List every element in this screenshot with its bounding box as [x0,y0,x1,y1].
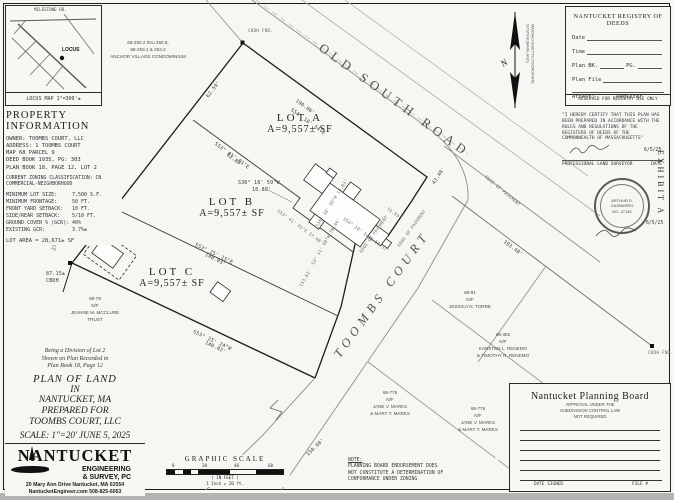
firm-address: 20 Mary Ann Drive Nantucket, MA 02554 [5,482,145,489]
firm-name: NANTUCKET [5,446,145,466]
dim-label: CBDH [46,279,59,285]
locus-dot [60,56,64,60]
lot-area-row: LOT AREA = 28,671± SF [6,238,122,245]
surveyor-seal: ARTHUR D. GASBARRO NO. 47145 [594,178,650,234]
scale-date-line: SCALE: 1"=20' JUNE 5, 2025 [5,430,145,440]
coordinate-system-note: MASSACHUSETTS COORDINATE SYSTEM (MAINLAN… [524,24,535,84]
locus-road-label: MILESTONE RD. [34,8,67,12]
exhibit-label: EXHIBIT A [656,150,665,216]
division-note: Shown on Plan Recorded in [5,356,145,364]
endorsement-note: NOTE: PLANNING BOARD ENDORSEMENT DOES NO… [348,458,498,484]
lighthouse-icon [29,446,35,460]
plan-title-in: IN [5,385,145,396]
title-block: Being a Division of Lot 2 Shown on Plan … [5,348,145,496]
dim-label: CBDH FND. [248,30,273,35]
signature-line [520,439,660,441]
property-info-row: MAP 68 PARCEL 9 [6,150,122,157]
graphic-scale-title: GRAPHIC SCALE [160,455,290,463]
graphic-scale: GRAPHIC SCALE 0 20 40 60 ( IN FEET ) 1 I… [160,455,290,487]
plan-title: PLAN OF LAND [5,374,145,385]
property-info-row: PLAN BOOK 18, PAGE 12, LOT 2 [6,165,122,172]
registry-planfile-row: Plan File [572,76,664,83]
registry-title: NANTUCKET REGISTRY OF DEEDS [566,13,670,27]
paper: MILESTONE RD. LOCUS LOCUS MAP 1"=300'± P… [0,0,674,493]
registry-time-row: Time [572,48,664,55]
plan-title-client: TOOMBS COURT, LLC [5,417,145,428]
firm-line3: & SURVEY, PC [5,474,145,482]
locus-label: LOCUS [62,48,80,53]
registry-date-row: Date [572,34,664,41]
metric-row: FRONT YARD SETBACK:10 FT. [6,206,122,213]
whale-icon [11,466,49,473]
abutter-anchor-village: 68-250.2 thru 250.8,68-253.1 & 253.2ANCH… [110,40,186,61]
signature-line [520,459,660,461]
division-note: Plan Book 18, Page 12 [5,363,145,371]
metric-row: MINIMUM LOT SIZE:7,500 S.F. [6,192,122,199]
planning-board-box: Nantucket Planning Board APPROVAL UNDER … [509,383,671,492]
dim-label: CBDH FND. [648,352,673,357]
bound-monument [68,261,72,265]
lot-c-label: LOT C A=9,557± SF [139,266,204,289]
dim-label: 87.15± [46,272,65,278]
property-info-row: OWNER: TOOMBS COURT, LLC [6,136,122,143]
bound-monument [241,41,245,45]
signature-line [520,429,660,431]
metric-row: GROUND COVER % (GCR):40% [6,220,122,227]
graphic-scale-ticks: 0 20 40 60 [160,463,290,469]
abutter-renemo: 68-382N/FKARSTEN L. RENEMO& TIMOTHY R. R… [477,332,529,360]
planning-board-subtitle: APPROVAL UNDER THE SUBDIVISION CONTROL L… [510,402,670,421]
property-info-row: DEED BOOK 1935, PG: 303 [6,157,122,164]
firm-logo: NANTUCKET ENGINEERING & SURVEY, PC 20 Ma… [5,443,145,496]
planning-board-title: Nantucket Planning Board [510,391,670,402]
metric-row: SIDE/REAR SETBACK:5/10 FT. [6,213,122,220]
abutter-torre: 68-91N/FJESSICA N. TORRE [449,290,491,311]
survey-plan-sheet: MILESTONE RD. LOCUS LOCUS MAP 1"=300'± P… [0,0,674,500]
abutter-marks-2: 68-775N/FJANE V. MARKS& MARY T. MARKS [458,406,498,434]
locus-map-inset: MILESTONE RD. LOCUS LOCUS MAP 1"=300'± [5,5,102,106]
shed-footprint [210,282,231,302]
plan-title-town: NANTUCKET, MA [5,395,145,406]
registry-footer: RESERVED FOR REGISTRY USE ONLY [566,94,670,105]
certification-text: "I HEREBY CERTIFY THAT THIS PLAN HAS BEE… [562,113,662,142]
metric-row: MINIMUM FRONTAGE:50 FT. [6,199,122,206]
abutter-marks-1: 68-775N/FJANE V. MARKS& MARY T. MARKS [370,390,410,418]
locus-caption: LOCUS MAP 1"=300'± [6,92,101,105]
north-arrow-icon [510,12,520,108]
metric-row: EXISTING GCR:3.7%± [6,227,122,234]
dim-label: S36° 18' 59"W [238,181,280,187]
scale-inch-note: 1 Inch = 20 ft. [160,481,290,487]
signature-line [520,449,660,451]
division-note: Being a Division of Lot 2 [5,348,145,356]
property-info-row: ADDRESS: 1 TOOMBS COURT [6,143,122,150]
registry-planbk-row: Plan BK.PG. [572,62,664,69]
plan-title-prepared: PREPARED FOR [5,406,145,417]
signature-line [520,469,660,471]
surveyor-certification: "I HEREBY CERTIFY THAT THIS PLAN HAS BEE… [562,113,662,168]
locus-map-roads [6,6,99,91]
date-signed-label: DATE SIGNED [520,480,577,487]
property-info-title: PROPERTY INFORMATION [6,110,122,132]
file-number-label: FILE # [618,480,662,487]
seal-date: 6/5/25 [646,222,663,227]
surveyor-seal-text: ARTHUR D. GASBARRO NO. 47145 [600,184,644,228]
registry-of-deeds-box: NANTUCKET REGISTRY OF DEEDS Date Time Pl… [565,6,671,106]
property-information-block: PROPERTY INFORMATION OWNER: TOOMBS COURT… [6,110,122,245]
lot-b-label: LOT B A=9,557± SF [199,196,264,219]
firm-contact: NantucketEngineer.com 508-825-6053 [5,489,145,496]
abutter-mcclure: 68-79N/FJEANNE M. MCCLURETRUST [71,296,120,324]
dim-label: 10.88' [252,188,271,194]
bound-monument [650,344,654,348]
planning-board-footer: DATE SIGNED FILE # [520,480,662,487]
certification-labels: PROFESSIONAL LAND SURVEYORDATE [562,163,662,168]
